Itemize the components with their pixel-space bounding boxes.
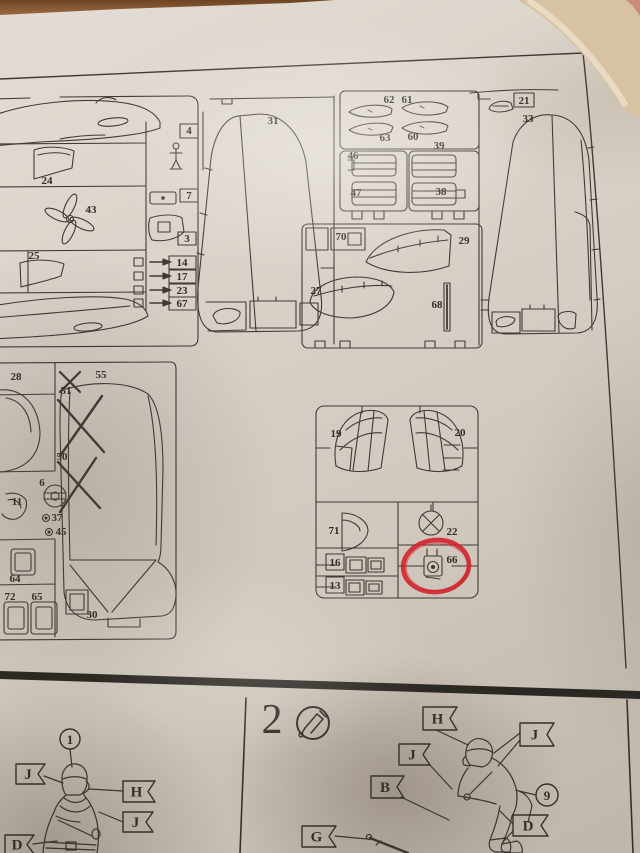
part-number-label: 20 — [455, 427, 467, 439]
part-number-label: 55 — [96, 369, 108, 381]
part-number-label: 23 — [177, 285, 189, 297]
sprue-fuselage — [0, 96, 198, 347]
part-number-label: 68 — [432, 299, 444, 311]
part-circle-label: 9 — [544, 788, 551, 803]
part-number-label: 24 — [42, 175, 54, 187]
paint-flag-letter: G — [311, 830, 323, 846]
paint-flag-letter: D — [12, 838, 23, 853]
part-number-label: 6 — [39, 477, 45, 489]
part-number-label: 63 — [380, 132, 392, 144]
panel-step1-figure — [33, 749, 123, 853]
glue-icon — [297, 707, 329, 739]
part-number-label: 7 — [186, 190, 192, 202]
part-number-label: 17 — [177, 271, 189, 283]
paint-flag-letter: J — [531, 728, 539, 744]
part-number-label: 14 — [177, 257, 189, 269]
part-number-label: 67 — [177, 298, 189, 310]
part-number-label: 22 — [447, 526, 459, 538]
part-number-label: 45 — [56, 526, 68, 538]
part-number-label: 47 — [351, 187, 363, 199]
part-number-label: 11 — [12, 496, 22, 508]
part-number-label: 51 — [61, 385, 72, 397]
paint-flag-letter: H — [432, 712, 444, 728]
part-number-label: 25 — [29, 250, 41, 262]
part-number-label: 71 — [329, 525, 340, 537]
step-number: 2 — [262, 697, 283, 743]
part-number-label: 19 — [331, 428, 343, 440]
part-number-label: 64 — [10, 573, 22, 585]
part-number-label: 37 — [52, 512, 64, 524]
sprue-detail — [0, 362, 176, 640]
paint-flag-letter: D — [523, 819, 534, 835]
part-number-label: 72 — [5, 591, 17, 603]
part-number-label: 13 — [330, 580, 342, 592]
paint-flag-letter: J — [408, 748, 416, 764]
part-number-label: 16 — [330, 557, 342, 569]
part-circle-label: 1 — [67, 732, 74, 747]
paint-flag-letter: H — [131, 785, 143, 801]
top-panel-frame — [0, 53, 626, 668]
sheet-edges — [0, 0, 640, 130]
part-number-label: 3 — [184, 233, 190, 245]
part-number-label: 60 — [408, 131, 420, 143]
part-number-label: 50 — [57, 451, 69, 463]
part-number-label: 27 — [311, 285, 323, 297]
part-number-label: 65 — [32, 591, 44, 603]
part-number-label: 43 — [86, 204, 98, 216]
panel-step2-figure — [335, 730, 536, 853]
part-number-label: 39 — [434, 140, 446, 152]
part-number-label: 38 — [436, 186, 448, 198]
paint-flag-letter: B — [380, 780, 390, 796]
paint-flag-letter: J — [132, 815, 140, 831]
instruction-sheet-photo: 2443254731417236731626163604639473870292… — [0, 0, 640, 853]
part-number-label: 28 — [11, 371, 23, 383]
part-number-label: 46 — [348, 150, 360, 162]
part-number-label: 70 — [336, 231, 348, 243]
part-number-label: 66 — [447, 554, 459, 566]
sprue-lower-wings — [302, 224, 482, 348]
part-number-label: 30 — [87, 609, 99, 621]
paint-flag-letter: J — [24, 767, 32, 783]
part-number-label: 29 — [459, 235, 471, 247]
wood-table-edge — [0, 0, 335, 15]
